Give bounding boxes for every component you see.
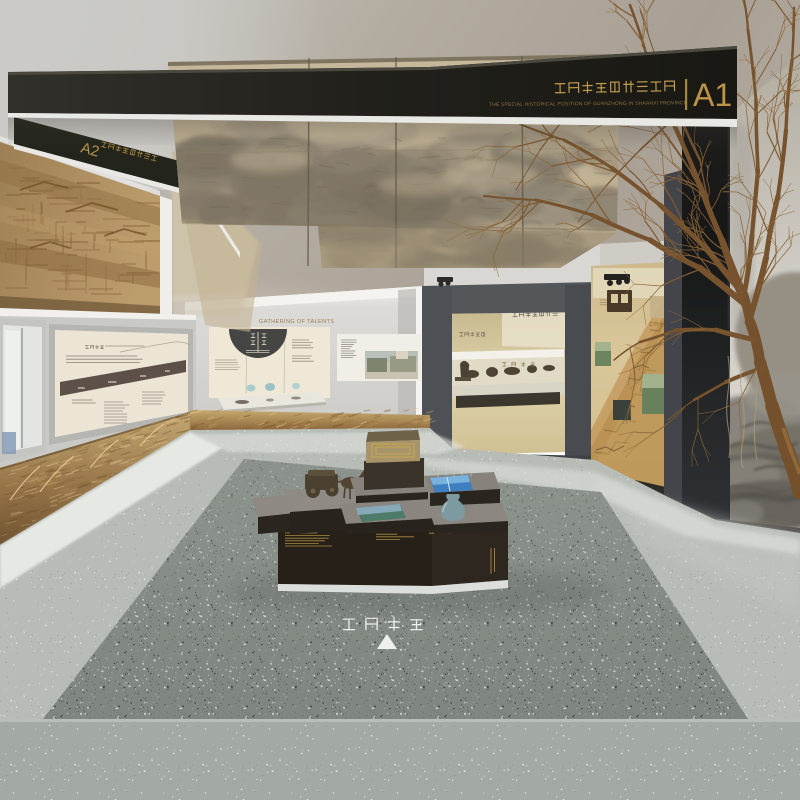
svg-text:GATHERING OF TALENTS: GATHERING OF TALENTS [259,319,334,325]
svg-text:A1: A1 [693,77,732,113]
